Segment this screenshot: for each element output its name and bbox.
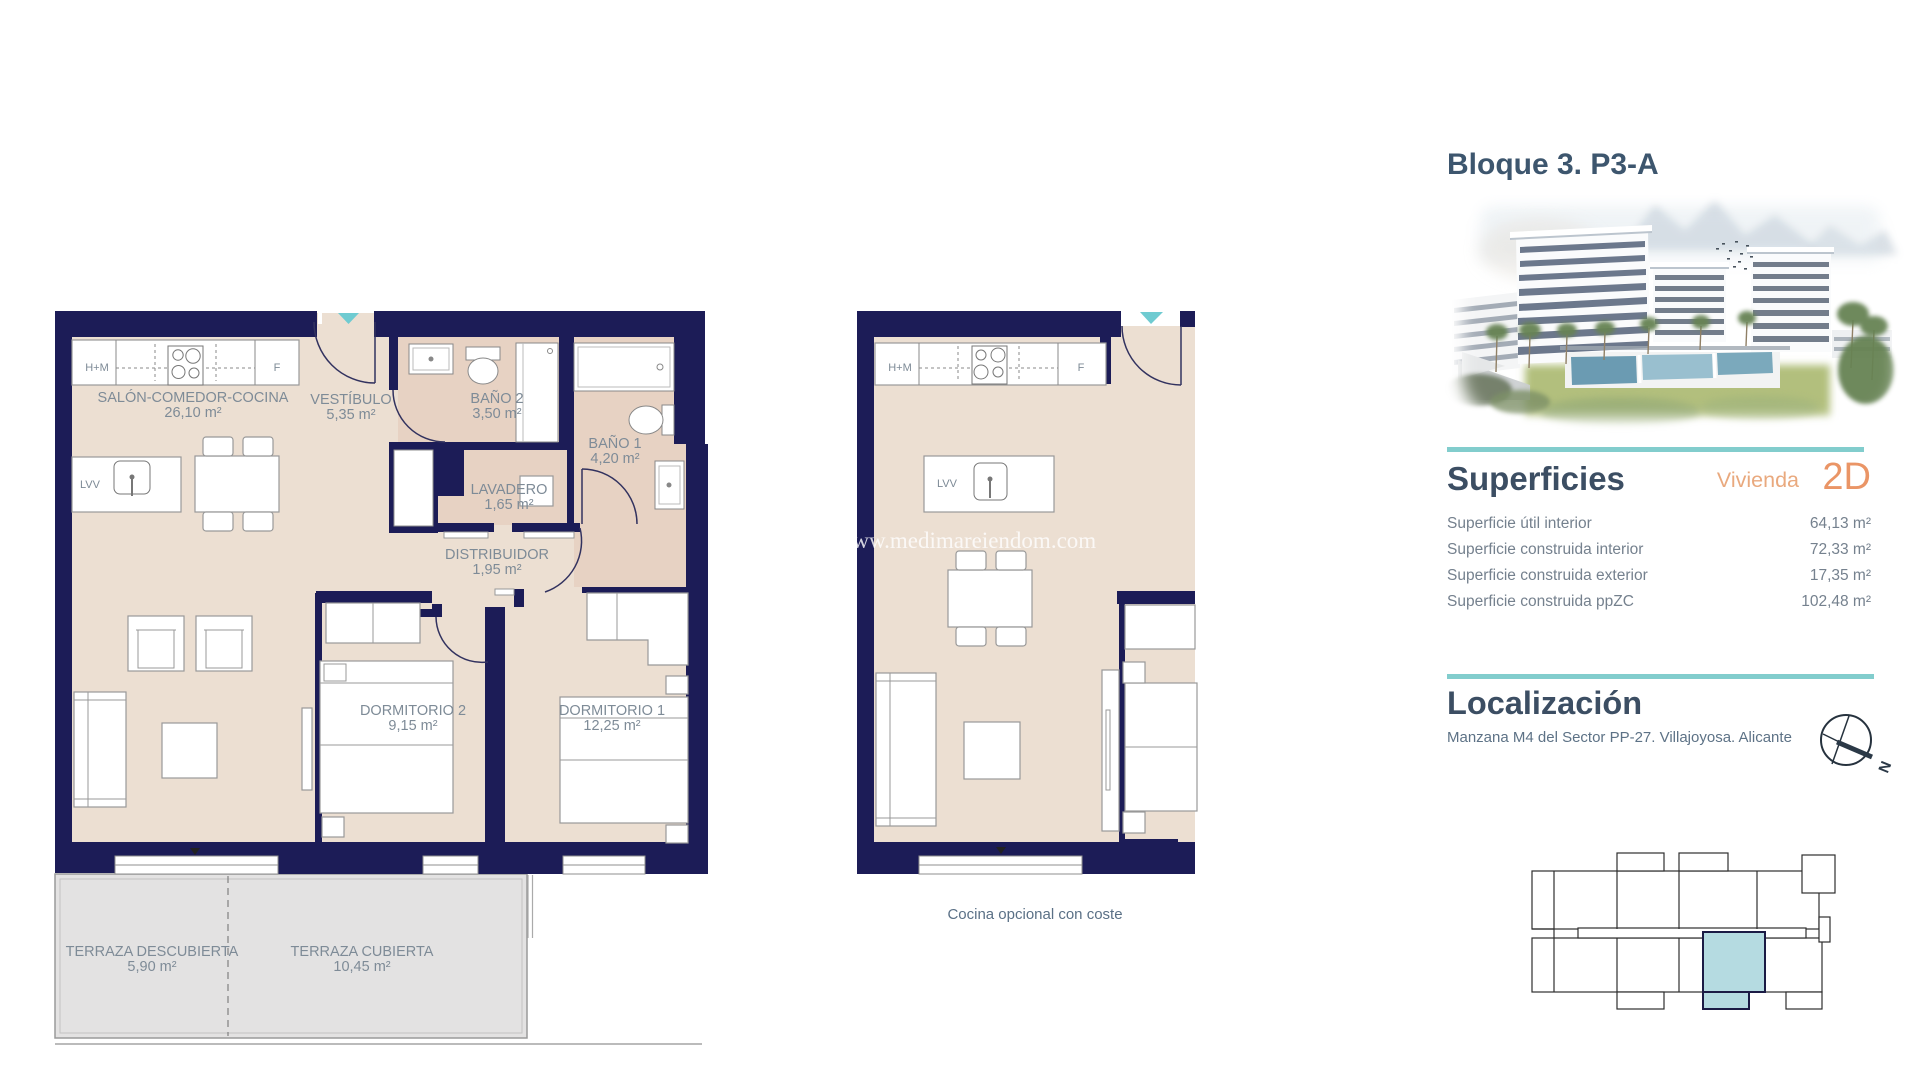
svg-text:Vivienda: Vivienda	[1717, 468, 1799, 492]
svg-text:DORMITORIO 2: DORMITORIO 2	[360, 703, 466, 719]
svg-text:Superficie útil interior: Superficie útil interior	[1447, 515, 1592, 532]
svg-text:Cocina opcional con coste: Cocina opcional con coste	[947, 906, 1122, 923]
svg-text:www.medimareiendom.com: www.medimareiendom.com	[836, 528, 1096, 553]
svg-text:TERRAZA CUBIERTA: TERRAZA CUBIERTA	[291, 944, 434, 960]
svg-text:BAÑO 2: BAÑO 2	[470, 390, 523, 407]
svg-text:LAVADERO: LAVADERO	[471, 482, 548, 498]
svg-text:DISTRIBUIDOR: DISTRIBUIDOR	[445, 547, 549, 563]
svg-text:Superficie construida exterior: Superficie construida exterior	[1447, 567, 1648, 584]
svg-text:Manzana M4 del Sector PP-27. V: Manzana M4 del Sector PP-27. Villajoyosa…	[1447, 729, 1792, 746]
svg-text:1,95 m²: 1,95 m²	[472, 562, 521, 578]
svg-text:Localización: Localización	[1447, 685, 1642, 721]
svg-text:SALÓN-COMEDOR-COCINA: SALÓN-COMEDOR-COCINA	[98, 389, 289, 406]
svg-text:N: N	[1874, 758, 1894, 774]
svg-text:5,35 m²: 5,35 m²	[326, 407, 375, 423]
svg-text:H+M: H+M	[85, 362, 109, 374]
svg-text:H+M: H+M	[888, 362, 912, 374]
svg-text:10,45 m²: 10,45 m²	[333, 959, 390, 975]
svg-text:TERRAZA DESCUBIERTA: TERRAZA DESCUBIERTA	[66, 944, 239, 960]
svg-text:VESTÍBULO: VESTÍBULO	[310, 391, 391, 408]
svg-text:LVV: LVV	[80, 479, 101, 491]
svg-text:Superficie construida interior: Superficie construida interior	[1447, 541, 1643, 558]
svg-text:LVV: LVV	[937, 478, 958, 490]
svg-text:17,35 m²: 17,35 m²	[1810, 567, 1871, 584]
svg-text:Superficie construida ppZC: Superficie construida ppZC	[1447, 593, 1634, 610]
svg-text:2D: 2D	[1822, 456, 1871, 498]
svg-text:102,48 m²: 102,48 m²	[1801, 593, 1871, 610]
svg-text:12,25 m²: 12,25 m²	[583, 718, 640, 734]
svg-text:72,33 m²: 72,33 m²	[1810, 541, 1871, 558]
svg-text:Bloque 3. P3-A: Bloque 3. P3-A	[1447, 148, 1659, 181]
svg-text:F: F	[1078, 362, 1085, 374]
svg-text:DORMITORIO 1: DORMITORIO 1	[559, 703, 665, 719]
svg-text:64,13 m²: 64,13 m²	[1810, 515, 1871, 532]
svg-text:BAÑO 1: BAÑO 1	[588, 435, 641, 452]
svg-text:26,10 m²: 26,10 m²	[164, 405, 221, 421]
svg-text:1,65 m²: 1,65 m²	[484, 497, 533, 513]
svg-text:9,15 m²: 9,15 m²	[388, 718, 437, 734]
svg-text:F: F	[274, 362, 281, 374]
svg-text:4,20 m²: 4,20 m²	[590, 451, 639, 467]
svg-text:5,90 m²: 5,90 m²	[127, 959, 176, 975]
svg-text:Superficies: Superficies	[1447, 460, 1625, 497]
svg-text:3,50 m²: 3,50 m²	[472, 406, 521, 422]
